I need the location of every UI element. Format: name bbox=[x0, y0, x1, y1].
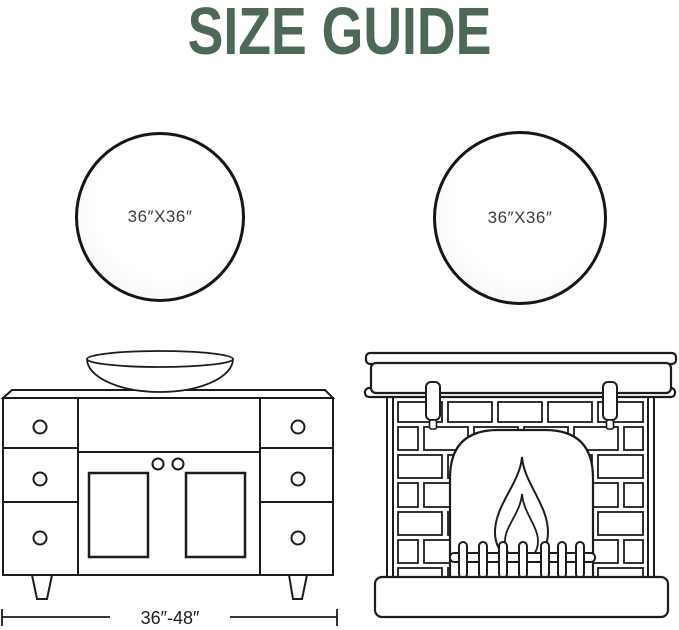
round-mirror-right: 36″X36″ bbox=[433, 131, 607, 305]
vanity-width-label: 36″-48″ bbox=[141, 608, 200, 628]
page-title: SIZE GUIDE bbox=[68, 0, 611, 65]
bathroom-vanity-illustration: 36″-48″ bbox=[0, 345, 340, 629]
fireplace-illustration bbox=[350, 345, 679, 630]
cabinet-legs bbox=[32, 575, 307, 599]
hearth-base bbox=[375, 577, 668, 617]
mantel-shelf bbox=[365, 353, 676, 397]
round-mirror-left: 36″X36″ bbox=[75, 132, 245, 302]
width-dimension-line: 36″-48″ bbox=[2, 608, 337, 628]
cabinet-body bbox=[3, 398, 333, 575]
vessel-sink-bowl bbox=[87, 351, 233, 392]
faucet-holes bbox=[153, 459, 184, 470]
mirror-left-size-label: 36″X36″ bbox=[128, 207, 193, 227]
mirror-right-size-label: 36″X36″ bbox=[488, 208, 553, 228]
cabinet-doors bbox=[89, 473, 245, 557]
drawer-knobs bbox=[34, 421, 305, 545]
